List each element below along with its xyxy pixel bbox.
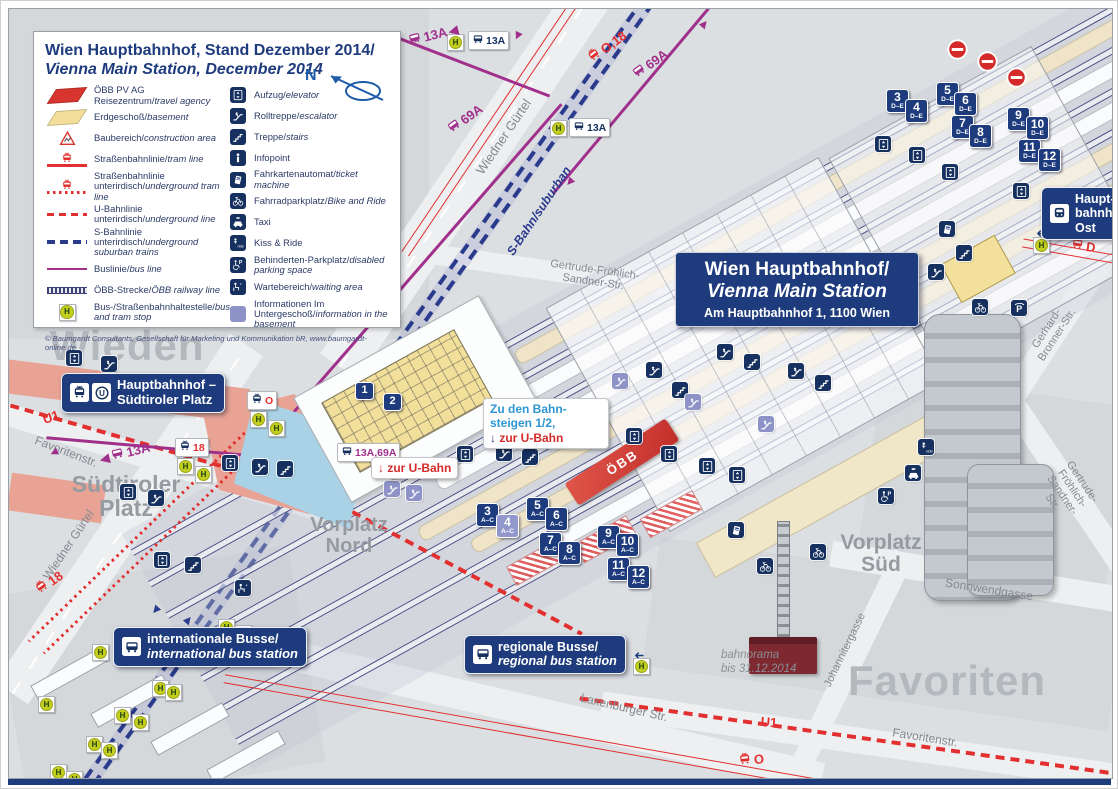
legend-item: Straßenbahnlinie unterirdisch/undergroun… <box>45 171 227 201</box>
legend-item: Infopoint <box>227 148 389 167</box>
bahnorama-tower-mast <box>777 521 790 648</box>
bus-tram-stop-icon: H <box>132 714 149 731</box>
bus-icon <box>122 637 141 656</box>
compass-icon <box>319 67 389 109</box>
svg-text:P: P <box>887 491 891 497</box>
bottom-accent-bar <box>8 779 1111 785</box>
north-label: N <box>305 67 317 85</box>
direction-arrow-icon: ◀ <box>99 450 111 466</box>
platform-number: 1 <box>356 383 373 398</box>
legend-item-label: Kiss & Ride <box>254 238 302 248</box>
stairs-icon <box>956 245 972 261</box>
legend-item-label: Rolltreppe/escalator <box>254 111 337 121</box>
legend-item: Informationen Im Untergeschoß/informatio… <box>227 299 389 329</box>
no-entry-icon <box>1006 67 1027 88</box>
escalator-icon <box>227 108 249 124</box>
bike-icon <box>810 544 826 560</box>
badge-line: Südtiroler Platz <box>117 393 216 408</box>
legend-item: S-Bahnlinie unterirdisch/underground sub… <box>45 227 227 257</box>
transit-line-label: O <box>737 750 765 770</box>
stop-badge: O <box>247 391 277 410</box>
legend-item-label: Bus-/Straßenbahnhaltestelle/bus and tram… <box>94 302 230 322</box>
elevator-icon <box>154 552 170 568</box>
no-entry-icon <box>947 39 968 60</box>
no-entry-icon <box>977 51 998 72</box>
bike-icon <box>227 193 249 209</box>
north-compass: N <box>305 67 389 109</box>
platform-sectors: A–C <box>628 580 649 586</box>
bahnorama-line: bahnorama <box>721 649 796 663</box>
legend-item-label: Informationen Im Untergeschoß/informatio… <box>254 299 389 329</box>
line-name: O <box>753 751 765 767</box>
svg-text:P: P <box>1016 304 1022 314</box>
line-u-icon <box>45 213 89 216</box>
legend-item: ÖBB PV AG Reisezentrum/travel agency <box>45 85 227 105</box>
tram-icon <box>70 383 89 402</box>
stop-line-number: O <box>265 395 273 407</box>
legend-item: PBehinderten-Parkplatz/disabled parking … <box>227 255 389 275</box>
bus-icon <box>473 645 492 664</box>
platform-sectors: A–C <box>559 556 580 562</box>
platform-sectors: A–C <box>617 548 638 554</box>
platform-badge: 12A–C <box>627 565 650 589</box>
waiting-icon <box>235 580 251 596</box>
svg-text:U: U <box>99 389 105 398</box>
escalator-icon <box>788 363 804 379</box>
basement-icon <box>227 306 249 322</box>
line-tram-icon <box>45 152 89 167</box>
platform-sectors: D–E <box>1039 163 1060 169</box>
infobox-zur-ubahn: ↓ zur U-Bahn <box>371 457 458 479</box>
train-icon <box>1050 204 1069 223</box>
escalator-icon <box>252 459 268 475</box>
badge-line: regional bus station <box>498 654 617 668</box>
parking-icon: P <box>1011 300 1027 316</box>
badge-line: Ost <box>1075 221 1113 235</box>
platform-badge: 4A–C <box>496 514 519 538</box>
elevator-icon <box>942 164 958 180</box>
bus-tram-stop-icon: H <box>250 411 267 428</box>
badge-line: bahnhof <box>1075 206 1113 220</box>
escalator-icon <box>717 344 733 360</box>
sw-red-icon <box>45 88 89 103</box>
legend-title-de: Wien Hauptbahnhof, Stand Dezember 2014/ <box>45 42 375 59</box>
legend-item: Erdgeschoß/basement <box>45 108 227 127</box>
info-icon <box>227 150 249 166</box>
escalator-icon <box>384 481 400 497</box>
elevator-icon <box>661 446 677 462</box>
legend-item-label: Infopoint <box>254 153 290 163</box>
platform-badge: 6D–E <box>954 92 977 116</box>
legend-item-label: Buslinie/bus line <box>94 264 162 274</box>
bahnorama-label: bahnorama bis 31.12.2014 <box>721 649 796 677</box>
badge-hauptbahnhof-suedtiroler-platz: U Hauptbahnhof –Südtiroler Platz <box>61 373 225 413</box>
escalator-icon <box>148 490 164 506</box>
legend-item-label: ÖBB-Strecke/ÖBB railway line <box>94 285 220 295</box>
down-arrow-icon: ↓ <box>490 431 496 445</box>
infobox-line: steigen 1/2, <box>490 416 602 430</box>
legend-title-en: Vienna Main Station, December 2014 <box>45 61 323 78</box>
elevator-icon <box>1013 183 1029 199</box>
bus-tram-stop-icon: H <box>550 120 567 137</box>
legend-right-column: Aufzug/elevatorRolltreppe/escalatorTrepp… <box>227 85 389 329</box>
stop-line-number: 13A <box>486 35 505 47</box>
line-rail-icon <box>45 287 89 294</box>
platform-badge: 6A–C <box>545 507 568 531</box>
platform-number: 2 <box>384 394 401 409</box>
platform-sectors: D–E <box>955 107 976 113</box>
district-label: Favoriten <box>848 657 1046 705</box>
infobox-text: zur U-Bahn <box>499 431 563 445</box>
legend-item: rideKiss & Ride <box>227 234 389 253</box>
stairs-icon <box>744 354 760 370</box>
platform-badge: 10A–C <box>616 533 639 557</box>
waiting-icon <box>227 279 249 295</box>
legend-item: Taxi <box>227 213 389 232</box>
badge-line: internationale Busse/ <box>147 632 298 647</box>
kissride-icon: ride <box>918 439 934 455</box>
elevator-icon <box>699 458 715 474</box>
legend-columns: ÖBB PV AG Reisezentrum/travel agencyErdg… <box>45 85 389 329</box>
elevator-icon <box>222 455 238 471</box>
platform-badge: 12D–E <box>1038 148 1061 172</box>
platform-badge: 8A–C <box>558 541 581 565</box>
taxi-icon <box>227 214 249 230</box>
taxi-icon <box>905 465 921 481</box>
line-tram-ug-icon <box>45 179 89 194</box>
infobox-text: zur U-Bahn <box>387 461 451 475</box>
badge-line: regionale Busse/ <box>498 640 617 654</box>
infobox-line: ↓ zur U-Bahn <box>490 431 602 445</box>
construction-icon <box>45 130 89 147</box>
elevator-icon <box>875 136 891 152</box>
legend-item: ÖBB-Strecke/ÖBB railway line <box>45 281 227 300</box>
stop-line-number: 13A <box>587 122 606 134</box>
elevator-icon <box>227 87 249 103</box>
legend-left-column: ÖBB PV AG Reisezentrum/travel agencyErdg… <box>45 85 227 329</box>
direction-arrow-icon: ◀ <box>447 22 459 38</box>
platform-badge: 4D–E <box>905 99 928 123</box>
escalator-icon <box>928 264 944 280</box>
legend-item: Buslinie/bus line <box>45 260 227 279</box>
legend-item: HBus-/Straßenbahnhaltestelle/bus and tra… <box>45 302 227 322</box>
elevator-icon <box>120 484 136 500</box>
platform-sectors: A–C <box>497 529 518 535</box>
stop-badge: 18 <box>175 438 209 457</box>
stop-badge: 13A <box>468 31 509 50</box>
bus-icon <box>341 445 353 460</box>
bus-icon <box>573 120 585 135</box>
escalator-icon <box>758 416 774 432</box>
line-bus-icon <box>45 268 89 270</box>
platform-sectors: D–E <box>906 114 927 120</box>
infobox-line: ↓ zur U-Bahn <box>378 461 451 475</box>
badge-hauptbahnhof-ost: Haupt-bahnhofOst <box>1041 187 1113 240</box>
ticket-icon <box>227 172 249 188</box>
badge-international-bus-station: internationale Busse/international bus s… <box>113 627 307 667</box>
bike-icon <box>972 299 988 315</box>
bus-tram-stop-icon: H <box>101 742 118 759</box>
infobox-platforms-1-2: Zu den Bahn- steigen 1/2, ↓ zur U-Bahn <box>483 398 609 449</box>
platform-sectors: D–E <box>1027 131 1048 137</box>
tram-icon <box>737 751 753 769</box>
legend-item-label: Wartebereich/waiting area <box>254 282 363 292</box>
sw-yellow-icon <box>45 110 89 125</box>
legend-item-label: Straßenbahnlinie/tram line <box>94 154 203 164</box>
line-name: 13A <box>422 24 449 44</box>
platform-sectors: A–C <box>477 518 498 524</box>
legend-item-label: Fahrradparkplatz/Bike and Ride <box>254 196 386 206</box>
badge-line: international bus station <box>147 647 298 662</box>
bus-icon <box>406 30 424 50</box>
platform-sectors: A–C <box>546 522 567 528</box>
badge-line: Hauptbahnhof – <box>117 378 216 393</box>
svg-text:ride: ride <box>926 448 933 453</box>
legend-item-label: Taxi <box>254 217 271 227</box>
bus-tram-stop-icon: H <box>38 696 55 713</box>
bus-tram-stop-icon: H <box>50 764 67 779</box>
legend-item: Straßenbahnlinie/tram line <box>45 150 227 169</box>
hstop-icon: H <box>45 304 89 321</box>
bus-tram-stop-icon: H <box>92 644 109 661</box>
legend-item-label: Erdgeschoß/basement <box>94 112 188 122</box>
bus-tram-stop-icon: H <box>177 458 194 475</box>
escalator-icon <box>612 373 628 389</box>
bus-direction-arrow-icon: ▲ <box>506 26 527 47</box>
platform-sectors: D–E <box>970 139 991 145</box>
legend-item-label: ÖBB PV AG Reisezentrum/travel agency <box>94 85 227 105</box>
bus-tram-stop-icon: H <box>268 420 285 437</box>
station-title-de: Wien Hauptbahnhof/ <box>680 259 914 281</box>
legend-item-label: Baubereich/construction area <box>94 133 216 143</box>
elevator-icon <box>909 147 925 163</box>
badge-line: Haupt- <box>1075 192 1113 206</box>
escalator-icon <box>101 356 117 372</box>
tram-icon <box>251 393 263 408</box>
stairs-icon <box>815 375 831 391</box>
platform-sectors: A–C <box>608 572 629 578</box>
ticket-icon <box>939 221 955 237</box>
escalator-icon <box>406 485 422 501</box>
transit-line-label: U1 <box>760 714 778 730</box>
legend-item-label: U-Bahnlinie unterirdisch/underground lin… <box>94 204 227 224</box>
station-map: ÖBB WiedenFavoritenSüdtirolerPlatzVorpla… <box>8 8 1113 779</box>
legend-item-label: Straßenbahnlinie unterirdisch/undergroun… <box>94 171 227 201</box>
u-bahn-icon: U <box>92 383 111 402</box>
station-title-en: Vienna Main Station <box>680 281 914 303</box>
platform-sectors: D–E <box>1019 154 1040 160</box>
stairs-icon <box>522 449 538 465</box>
platform-badge: 2 <box>383 393 402 411</box>
escalator-icon <box>685 394 701 410</box>
elevator-icon <box>729 467 745 483</box>
platform-badge: 10D–E <box>1026 116 1049 140</box>
bus-tram-stop-icon: H <box>633 658 650 675</box>
legend-item-label: S-Bahnlinie unterirdisch/underground sub… <box>94 227 227 257</box>
svg-text:P: P <box>239 260 243 266</box>
bus-tram-stop-icon: H <box>195 466 212 483</box>
kissride-icon: ride <box>227 235 249 251</box>
legend-item: Rolltreppe/escalator <box>227 106 389 125</box>
bus-direction-arrow-icon: ▲ <box>694 12 717 35</box>
platform-badge: 1 <box>355 382 374 400</box>
bus-tram-stop-icon: H <box>66 771 83 779</box>
legend-item: Fahrradparkplatz/Bike and Ride <box>227 192 389 211</box>
stop-line-number: 18 <box>193 442 205 454</box>
legend-item-label: Fahrkartenautomat/ticket machine <box>254 169 389 189</box>
legend-item: U-Bahnlinie unterirdisch/underground lin… <box>45 204 227 224</box>
elevator-icon <box>626 428 642 444</box>
legend-item: Wartebereich/waiting area <box>227 278 389 297</box>
legend-item-label: Behinderten-Parkplatz/disabled parking s… <box>254 255 389 275</box>
place-label: VorplatzNord <box>310 515 387 557</box>
stairs-icon <box>227 129 249 145</box>
ticket-icon <box>728 522 744 538</box>
station-address: Am Hauptbahnhof 1, 1100 Wien <box>680 306 914 320</box>
stairs-icon <box>277 461 293 477</box>
legend-copyright: © Baumgardt Consultants, Gesellschaft fü… <box>45 334 389 352</box>
svg-text:ride: ride <box>238 245 244 249</box>
disabled-icon: P <box>227 257 249 273</box>
platform-badge: 8D–E <box>969 124 992 148</box>
badge-regional-bus-station: regionale Busse/regional bus station <box>464 635 626 674</box>
bus-icon <box>472 33 484 48</box>
bike-icon <box>757 558 773 574</box>
stop-badge: 13A <box>569 118 610 137</box>
page: ÖBB WiedenFavoritenSüdtirolerPlatzVorpla… <box>0 0 1118 789</box>
escalator-icon <box>646 362 662 378</box>
legend-item: Baubereich/construction area <box>45 129 227 148</box>
station-title-box: Wien Hauptbahnhof/ Vienna Main Station A… <box>675 252 919 327</box>
legend-item: Treppe/stairs <box>227 127 389 146</box>
disabled-icon: P <box>878 488 894 504</box>
infobox-line: Zu den Bahn- <box>490 402 602 416</box>
bus-tram-stop-icon: H <box>114 707 131 724</box>
legend-item-label: Treppe/stairs <box>254 132 308 142</box>
down-arrow-icon: ↓ <box>378 461 384 475</box>
line-name: U1 <box>760 714 778 730</box>
bus-icon <box>109 445 127 465</box>
bus-tram-stop-icon: H <box>165 684 182 701</box>
tram-icon <box>179 440 191 455</box>
legend-item: Fahrkartenautomat/ticket machine <box>227 169 389 189</box>
bahnorama-line: bis 31.12.2014 <box>721 663 796 677</box>
elevator-icon <box>457 446 473 462</box>
line-s-icon <box>45 240 89 244</box>
place-label: VorplatzSüd <box>840 532 921 576</box>
stairs-icon <box>185 557 201 573</box>
